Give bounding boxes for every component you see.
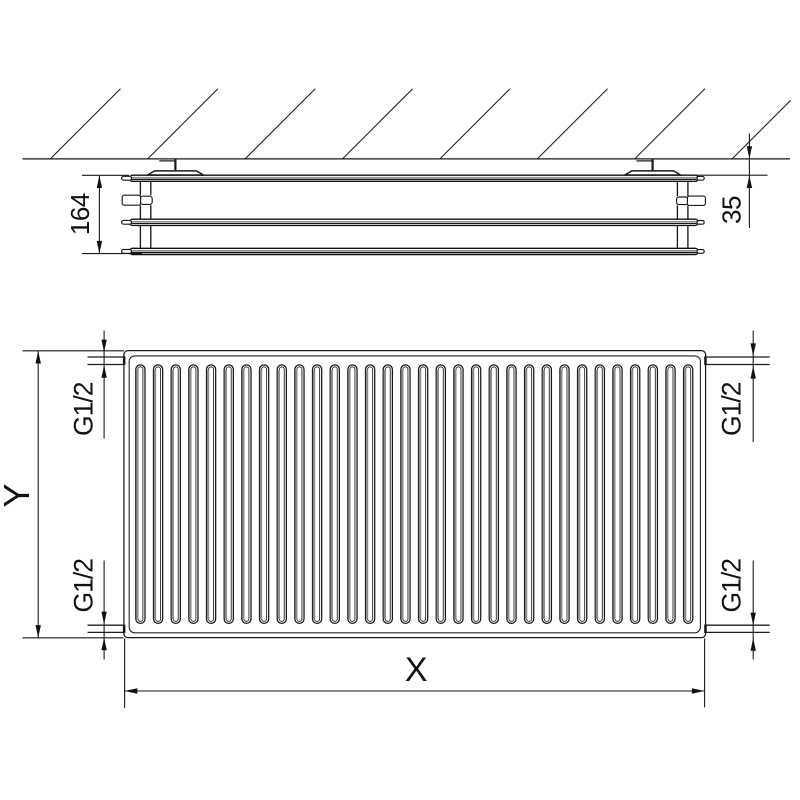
svg-text:164: 164 — [65, 193, 95, 235]
svg-text:X: X — [405, 651, 428, 689]
svg-text:35: 35 — [717, 196, 747, 224]
svg-text:Y: Y — [0, 483, 37, 507]
svg-text:G1/2: G1/2 — [68, 382, 98, 436]
svg-text:G1/2: G1/2 — [716, 382, 746, 436]
svg-text:G1/2: G1/2 — [716, 559, 746, 613]
svg-text:G1/2: G1/2 — [68, 559, 98, 613]
